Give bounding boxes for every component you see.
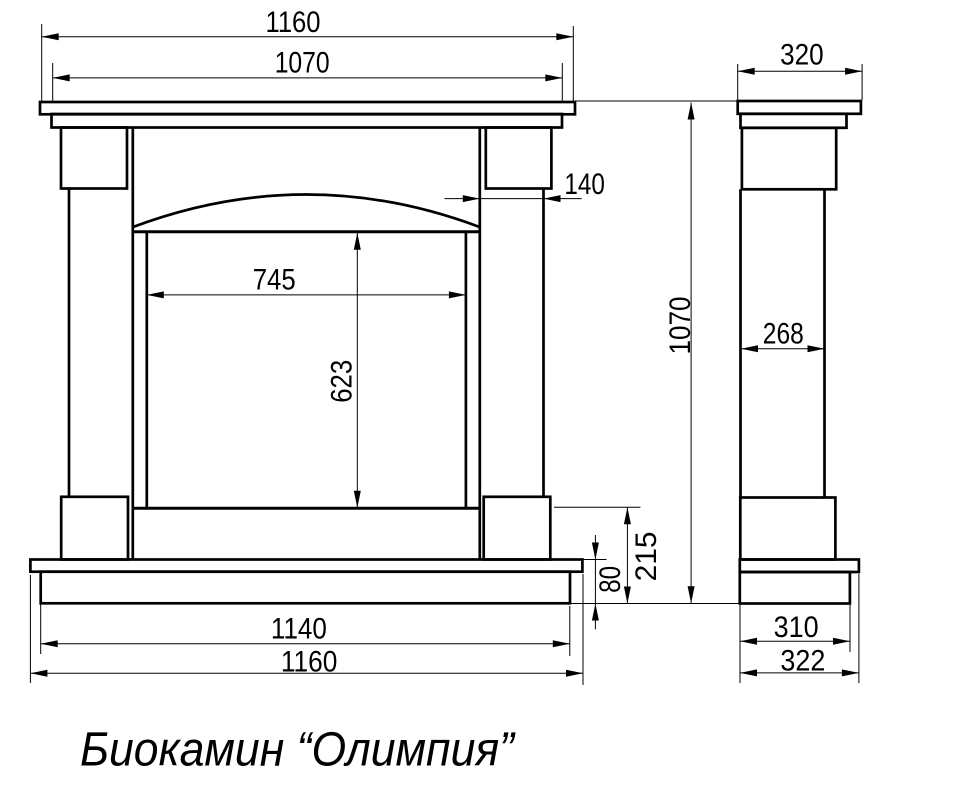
svg-text:215: 215 [630, 531, 663, 581]
svg-text:1140: 1140 [271, 613, 327, 646]
svg-text:623: 623 [326, 360, 359, 403]
svg-text:140: 140 [564, 168, 605, 201]
svg-text:1070: 1070 [275, 46, 330, 79]
svg-text:310: 310 [774, 611, 819, 644]
svg-text:268: 268 [763, 317, 804, 350]
svg-text:80: 80 [594, 566, 627, 593]
svg-text:1070: 1070 [664, 297, 697, 355]
svg-text:1160: 1160 [266, 6, 321, 39]
svg-text:Биокамин “Олимпия”: Биокамин “Олимпия” [80, 724, 516, 777]
svg-text:320: 320 [780, 39, 824, 72]
svg-text:745: 745 [253, 263, 296, 296]
svg-text:322: 322 [780, 645, 825, 678]
svg-text:1160: 1160 [281, 646, 338, 679]
